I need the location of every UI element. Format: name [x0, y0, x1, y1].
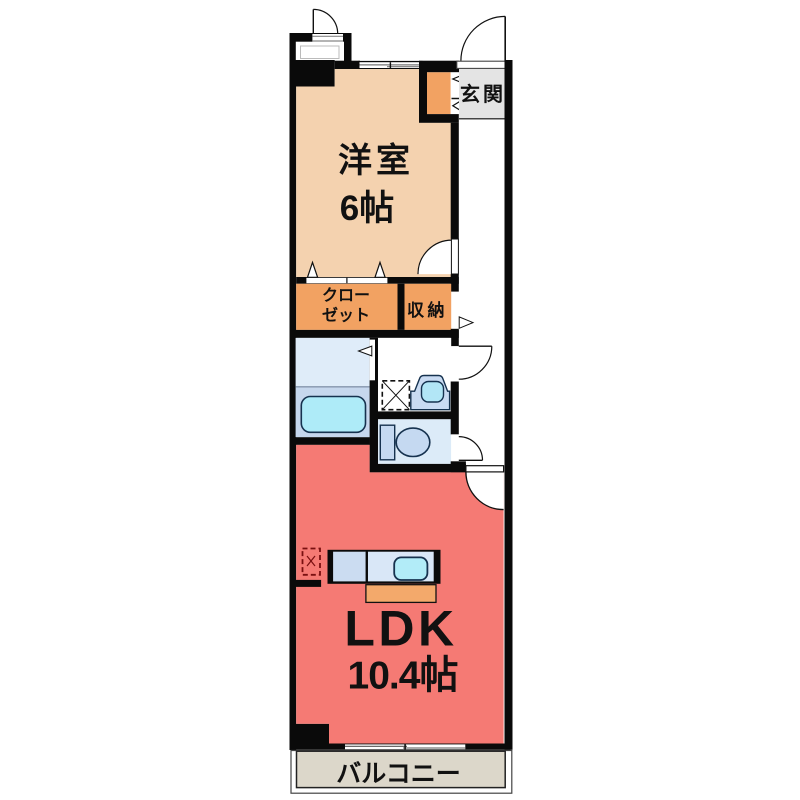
svg-text:クロー: クロー: [322, 286, 370, 304]
svg-text:玄関: 玄関: [460, 82, 506, 106]
svg-text:バルコニー: バルコニー: [336, 760, 461, 788]
svg-text:収納: 収納: [407, 300, 448, 320]
svg-text:ゼット: ゼット: [322, 306, 370, 325]
svg-text:10.4帖: 10.4帖: [348, 655, 458, 698]
svg-text:6帖: 6帖: [340, 189, 394, 228]
svg-text:LDK: LDK: [344, 601, 457, 657]
svg-text:洋室: 洋室: [338, 141, 414, 180]
